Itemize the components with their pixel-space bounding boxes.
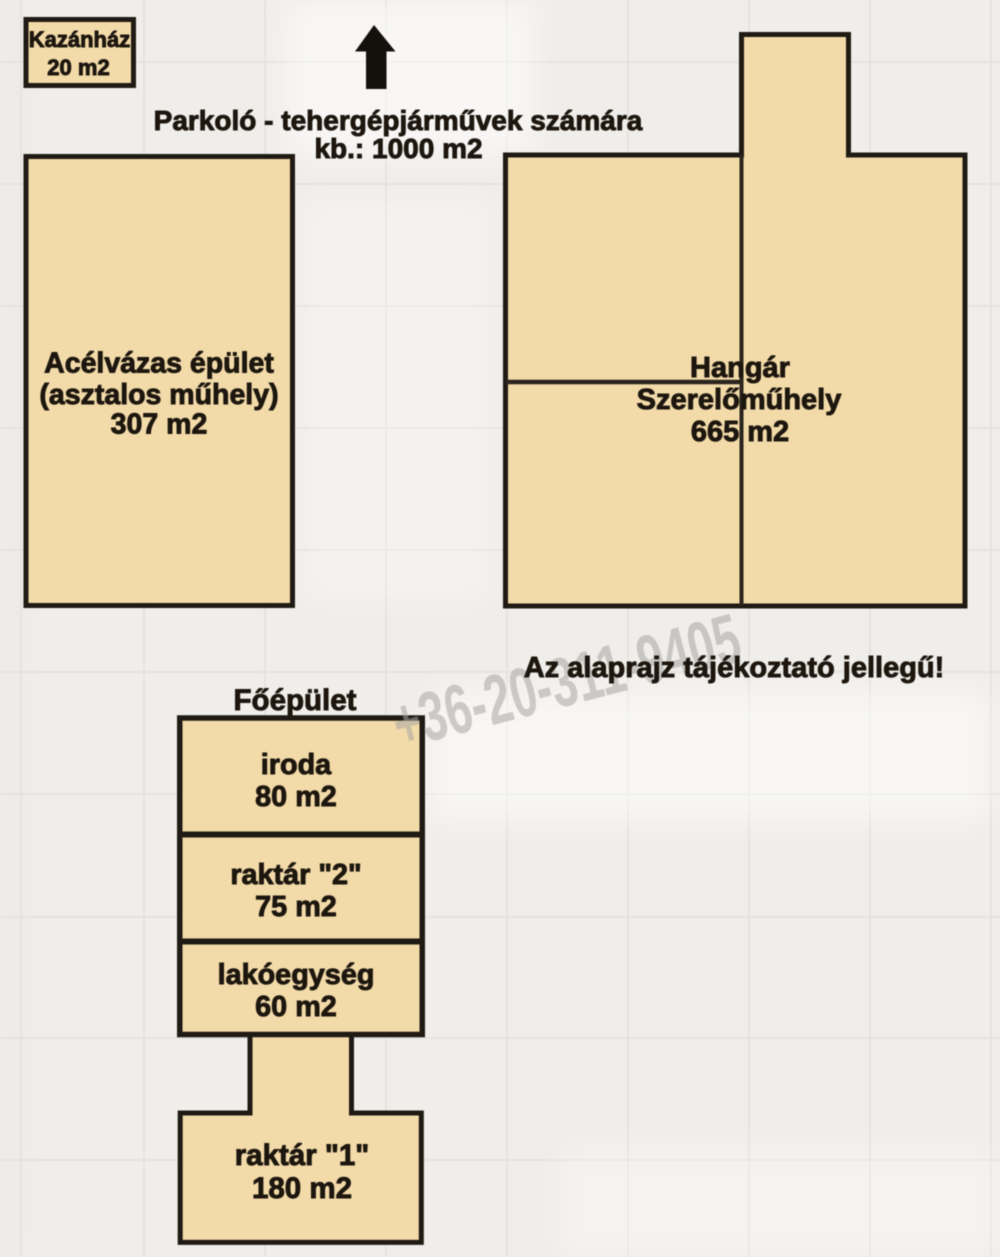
svg-text:raktár "2": raktár "2" <box>230 859 361 891</box>
svg-text:Hangár: Hangár <box>690 352 790 384</box>
svg-text:(asztalos műhely): (asztalos műhely) <box>39 379 278 411</box>
svg-text:Az alaprajz tájékoztató jelleg: Az alaprajz tájékoztató jellegű! <box>524 652 945 684</box>
svg-text:20 m2: 20 m2 <box>47 55 109 80</box>
svg-text:Parkoló - tehergépjárművek szá: Parkoló - tehergépjárművek számára <box>154 105 643 136</box>
svg-text:75 m2: 75 m2 <box>255 891 337 923</box>
svg-text:kb.: 1000 m2: kb.: 1000 m2 <box>314 133 482 164</box>
svg-text:665 m2: 665 m2 <box>691 416 789 448</box>
svg-text:lakóegység: lakóegység <box>218 959 375 991</box>
svg-text:Szerelőműhely: Szerelőműhely <box>637 384 842 416</box>
svg-text:raktár "1": raktár "1" <box>235 1139 370 1172</box>
svg-text:Acélvázas épület: Acélvázas épület <box>44 348 274 380</box>
svg-text:60 m2: 60 m2 <box>255 991 337 1023</box>
svg-text:180 m2: 180 m2 <box>252 1172 352 1205</box>
svg-text:iroda: iroda <box>261 749 332 781</box>
svg-text:307 m2: 307 m2 <box>111 409 208 441</box>
svg-text:Főépület: Főépület <box>234 684 357 717</box>
svg-text:80 m2: 80 m2 <box>255 781 337 813</box>
svg-text:Kazánház: Kazánház <box>29 27 130 52</box>
